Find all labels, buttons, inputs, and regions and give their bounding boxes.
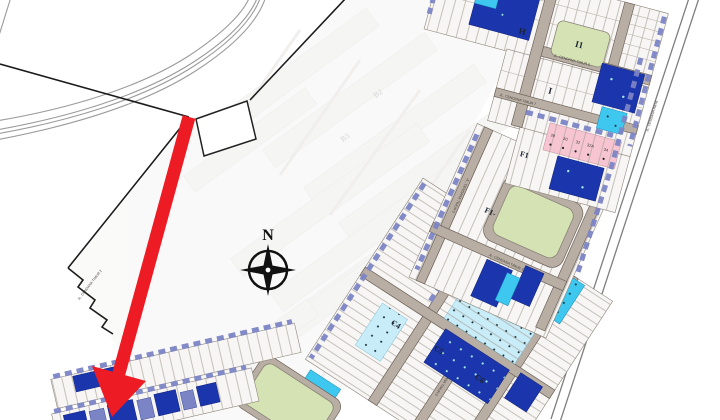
- site-plan-map: B2 B3 JL. CENDANA RAYA JL. CENDANA TIMUR…: [0, 0, 720, 420]
- compass-north-label: N: [262, 227, 274, 244]
- compass-center: [266, 268, 271, 273]
- corner-road-line: [0, 0, 11, 42]
- plot-dark-blue: [196, 382, 220, 406]
- plot-dark-blue: [154, 390, 180, 416]
